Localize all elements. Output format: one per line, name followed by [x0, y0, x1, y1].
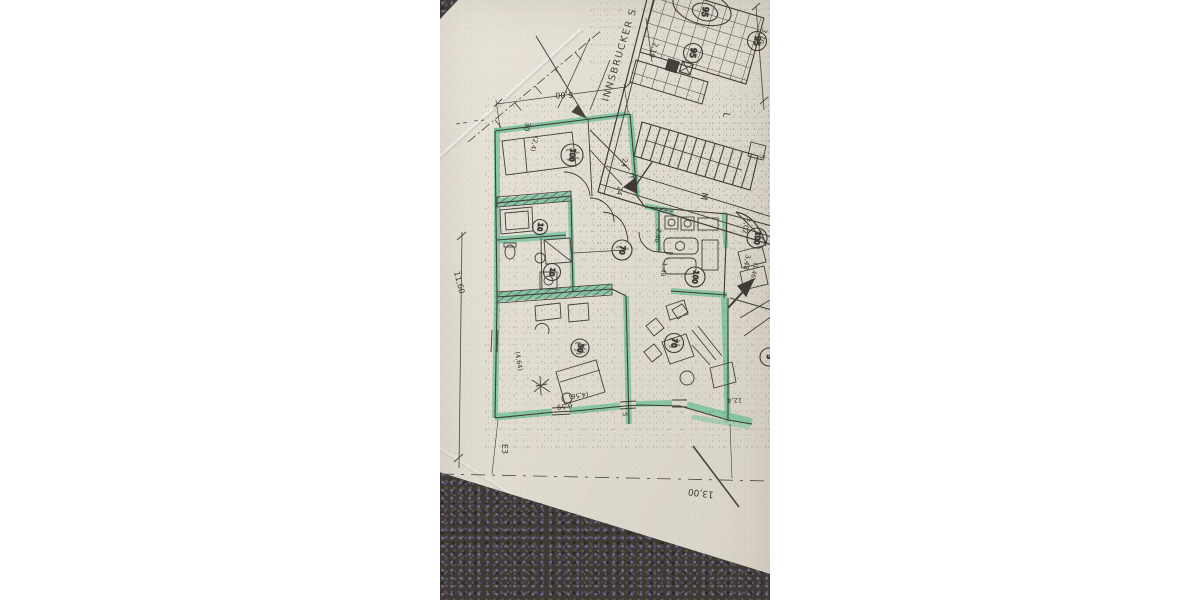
dim-24-b: 24: [614, 186, 624, 197]
round-stool: [680, 371, 694, 385]
r-arrow-shaft: [636, 162, 652, 185]
dim-13-00: 13,00: [687, 486, 714, 499]
floorplan-photo: INNSBRUCKER S 5,00 30 (2,4) 11,60 13,00 …: [440, 0, 770, 600]
left-dim-line: [459, 232, 462, 468]
plant: [532, 376, 550, 395]
door-arc: [603, 212, 628, 242]
dim-30: 30: [522, 122, 532, 132]
hatched-wall: [497, 191, 571, 207]
label-m: M: [698, 191, 709, 200]
svg-text:95: 95: [700, 6, 710, 17]
dim-4-64: (4,64): [513, 351, 524, 372]
svg-text:95: 95: [688, 47, 698, 58]
dim-24-a: 24: [619, 158, 629, 169]
bathtub: [500, 207, 533, 234]
label-e3: E3: [500, 444, 509, 454]
dim-1-49: 1,49: [659, 262, 669, 278]
wardrobe-diagonals: [692, 326, 722, 365]
hob: [665, 216, 678, 229]
chair: [535, 323, 549, 334]
svg-text:10: 10: [547, 267, 556, 276]
door-arc: [590, 198, 614, 222]
room-circle-10a: 10: [533, 220, 548, 235]
cupboard: [702, 240, 718, 270]
room-circle-70b: 70: [665, 334, 684, 353]
room-circle-100c: 100: [685, 267, 705, 287]
dim-11-60: 11,60: [452, 270, 466, 294]
dim-5-00: 5,00: [555, 90, 573, 100]
screenshot-canvas: INNSBRUCKER S 5,00 30 (2,4) 11,60 13,00 …: [0, 0, 1200, 600]
dimension-lines: [440, 3, 770, 507]
dim-4-56: (4,56): [568, 390, 588, 401]
svg-text:100: 100: [752, 231, 762, 245]
svg-text:10: 10: [535, 222, 544, 231]
fridge: [664, 238, 698, 254]
label-l: L: [720, 111, 731, 118]
dim-2-4: (2,4): [529, 136, 540, 153]
dim-3-48: 3,48: [741, 254, 752, 271]
room-circle-5: 5: [760, 348, 770, 366]
svg-text:5: 5: [765, 354, 770, 360]
bottom-dim-line: [440, 474, 770, 481]
sink: [535, 253, 545, 263]
dim-12-4: 12,4: [727, 396, 742, 405]
room-circle-30: 30: [571, 339, 589, 357]
dim-2-40: 2,40: [653, 228, 663, 244]
svg-text:95: 95: [752, 35, 762, 46]
hatched-wall: [497, 284, 612, 303]
cabinet: [535, 303, 561, 321]
dim-6-59: 6,59: [556, 401, 573, 411]
shower: [544, 238, 572, 264]
room-circle-100a: 100: [561, 144, 583, 166]
room-circle-70a: 70: [612, 240, 632, 260]
label-5-window: 5: [620, 412, 629, 417]
svg-text:100: 100: [690, 270, 700, 284]
